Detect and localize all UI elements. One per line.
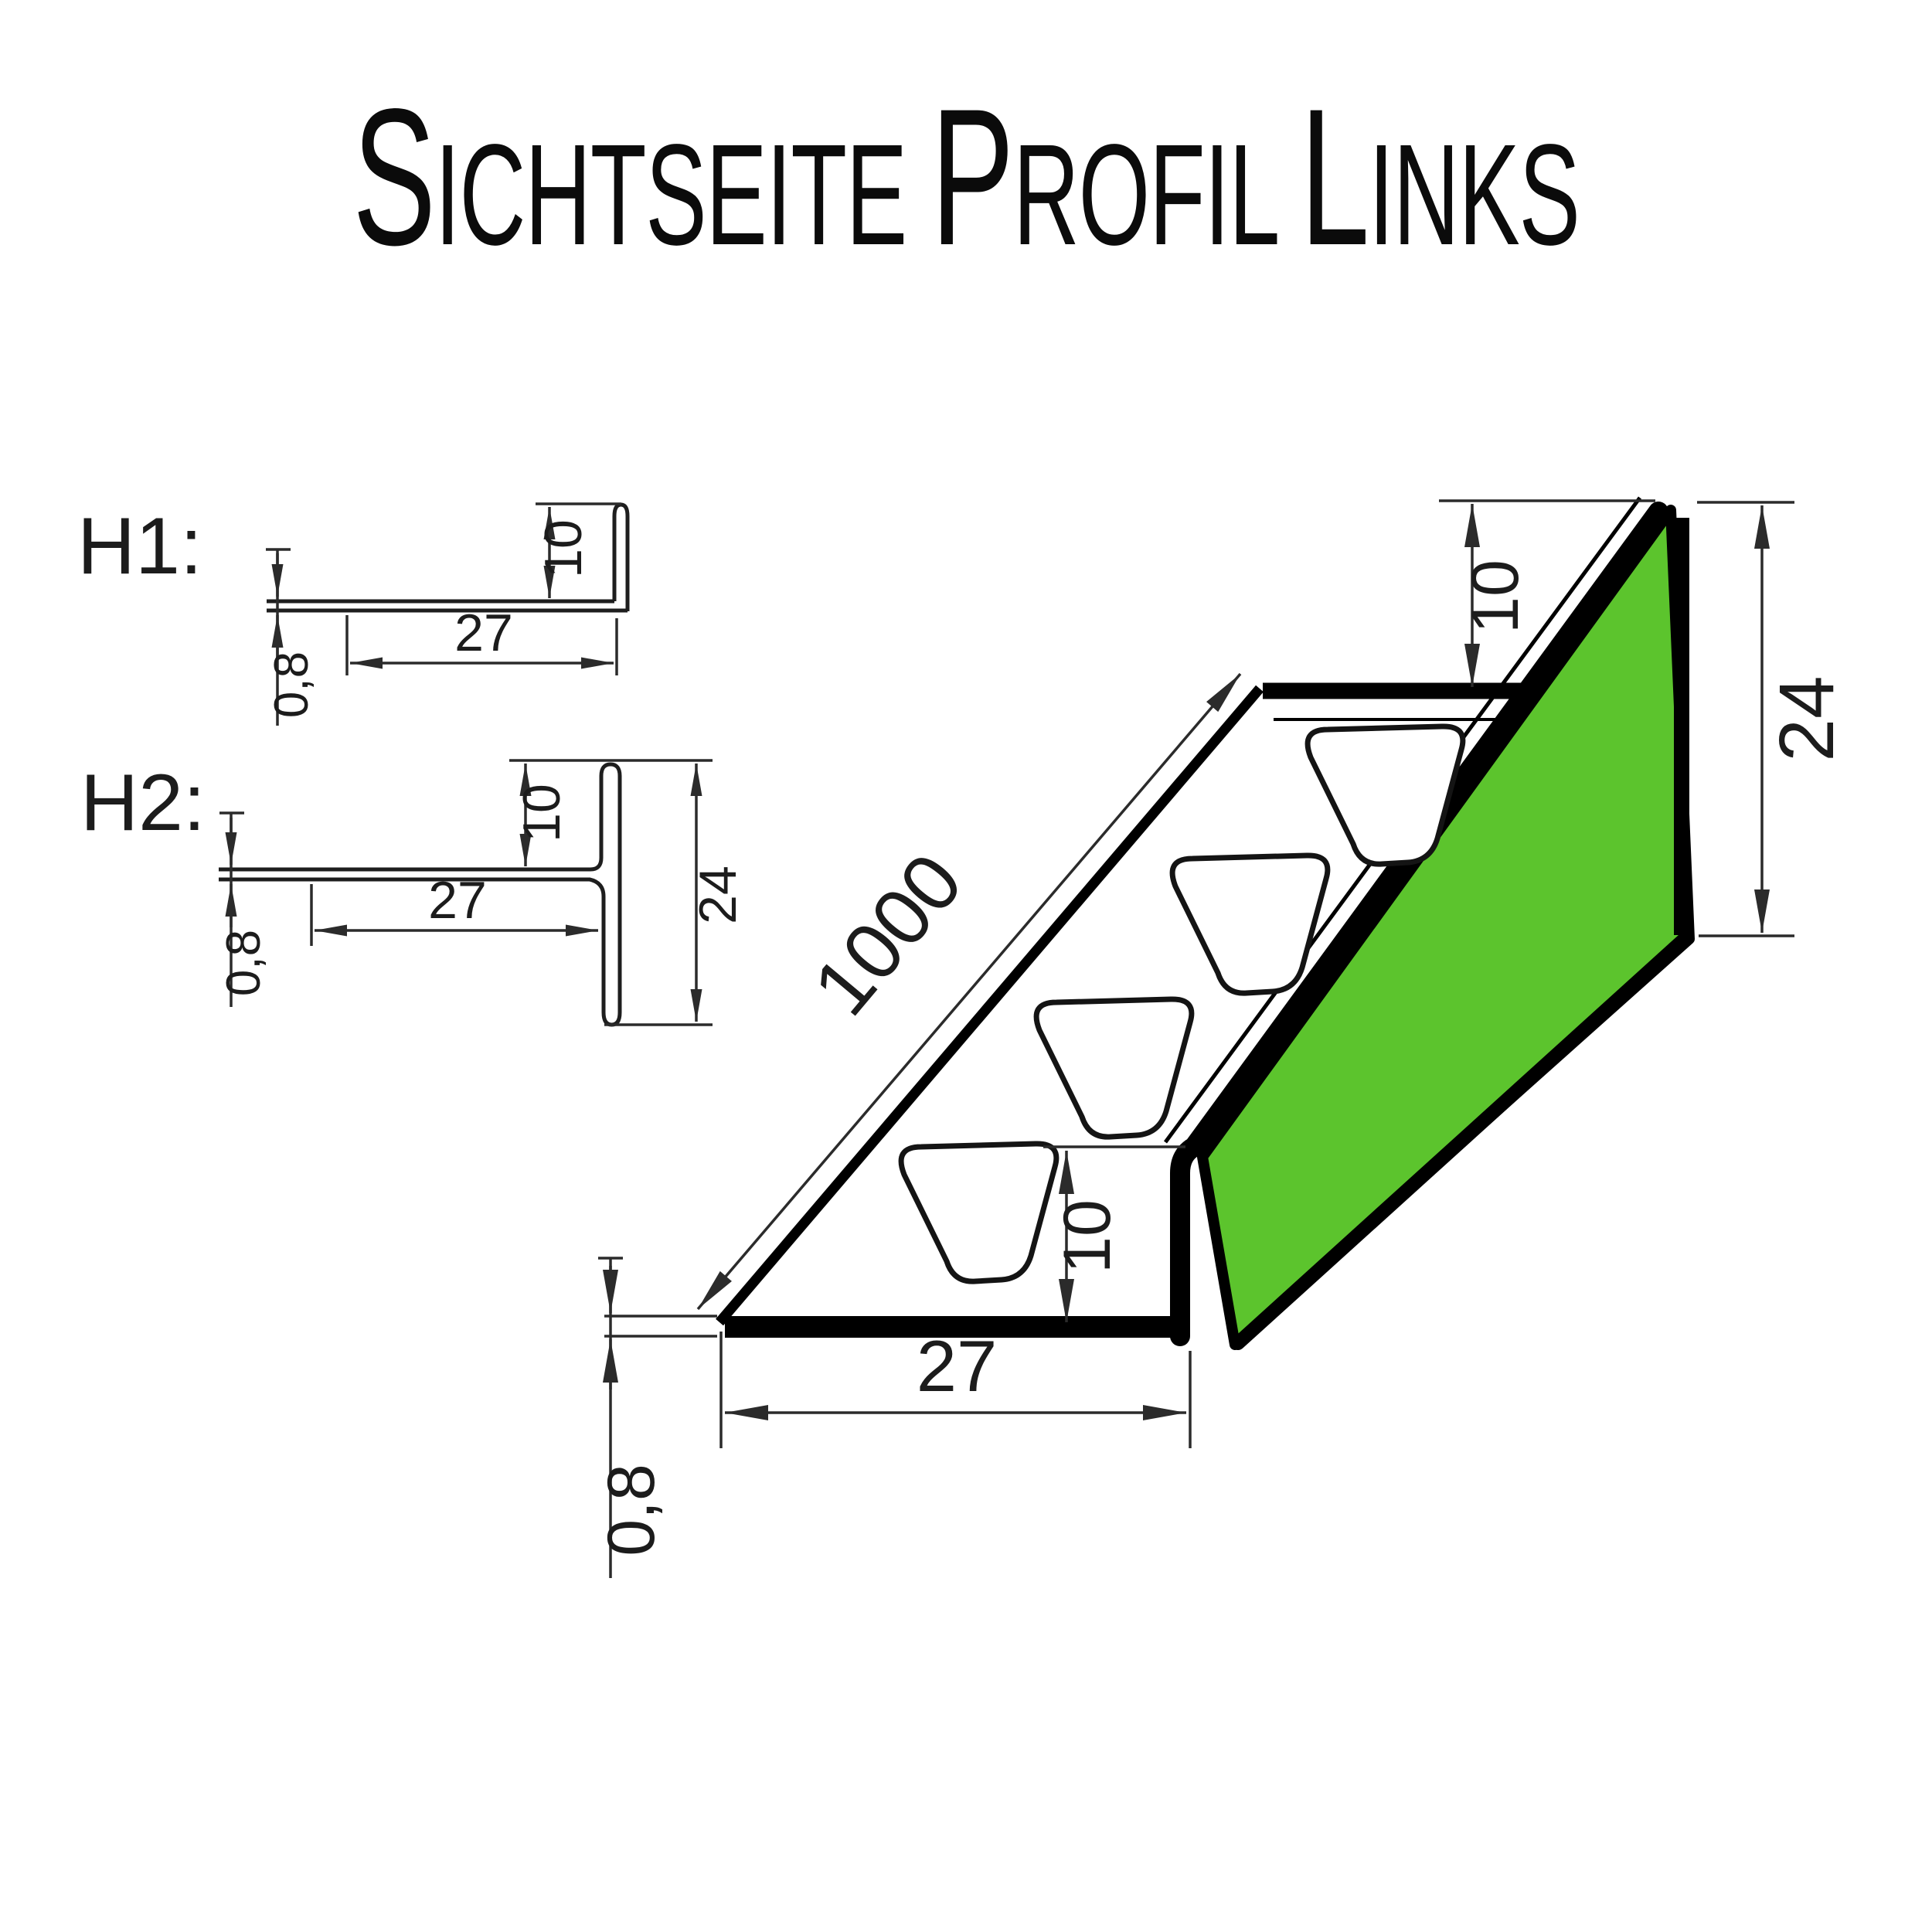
- iso-dim-length: 1000: [796, 838, 980, 1032]
- h2-dim-upstand: 10: [512, 784, 571, 842]
- h1-label: H1:: [77, 502, 202, 591]
- isometric-view: 1000 10 24 10 27 0: [594, 498, 1850, 1578]
- h1-dim-upstand: 10: [534, 519, 593, 578]
- iso-dim-height: 24: [1764, 675, 1850, 761]
- h2-dim-height: 24: [689, 866, 747, 924]
- h2-dim-thickness: 0,8: [217, 930, 270, 996]
- section-h2: H2: 10 24 27 0,8: [80, 758, 747, 1025]
- drawing-page: Sichtseite Profil Links H1: 10: [0, 0, 1932, 1932]
- section-h1: H1: 10 27 0,8: [77, 502, 628, 726]
- h1-upstand-fold: [614, 505, 628, 611]
- iso-dim-upstand-near: 10: [1050, 1199, 1124, 1274]
- iso-dim-width: 27: [917, 1325, 998, 1406]
- h2-dim-width: 27: [428, 871, 487, 930]
- h1-dim-thickness: 0,8: [265, 651, 318, 718]
- iso-dim-upstand-far: 10: [1458, 560, 1532, 634]
- h1-dim-width: 27: [454, 604, 513, 662]
- technical-drawing: H1: 10 27 0,8 H2:: [0, 0, 1932, 1932]
- iso-dim-thickness: 0,8: [594, 1464, 668, 1556]
- h2-label: H2:: [80, 758, 206, 848]
